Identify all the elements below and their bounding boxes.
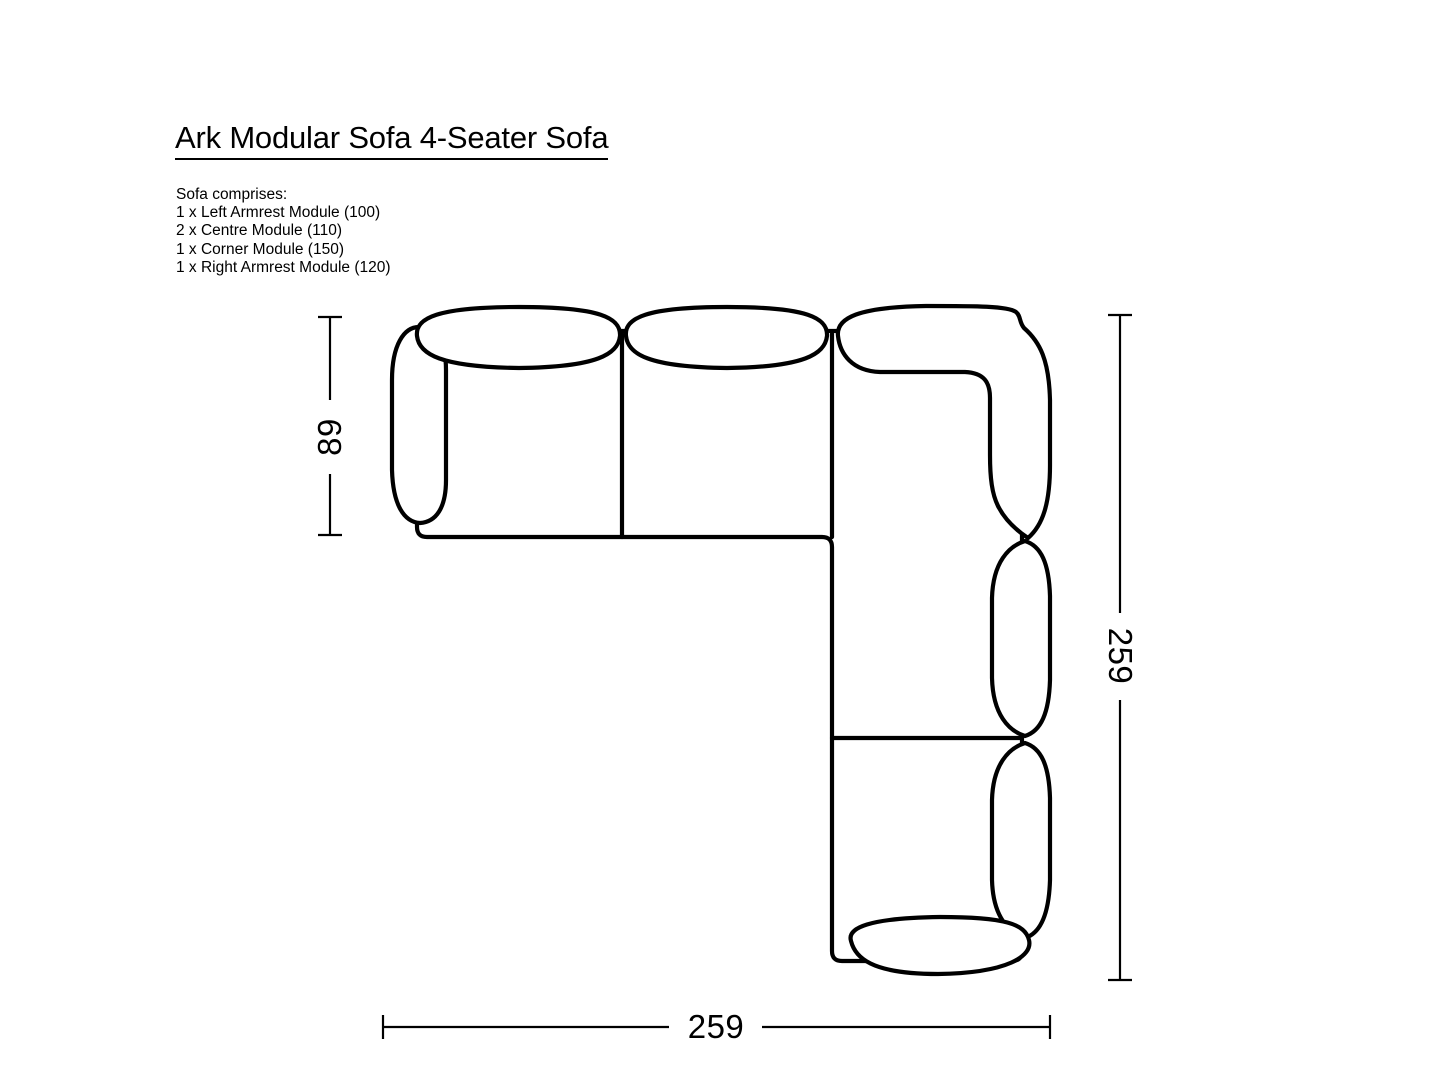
dim-label-total-width: 259	[688, 1008, 745, 1046]
dim-label-module-depth: 89	[311, 418, 349, 456]
dim-label-total-depth: 259	[1101, 628, 1139, 685]
right-armrest-cushion	[851, 917, 1030, 974]
sofa-top-view-drawing	[0, 0, 1445, 1087]
back-cushion-right-upper	[992, 541, 1050, 736]
back-cushion-left	[417, 307, 620, 368]
sofa-seat-outline	[417, 331, 1022, 961]
product-spec-sheet: Ark Modular Sofa 4-Seater Sofa Sofa comp…	[0, 0, 1445, 1087]
back-cushion-centre	[626, 307, 827, 368]
back-cushion-right-lower	[992, 743, 1050, 938]
